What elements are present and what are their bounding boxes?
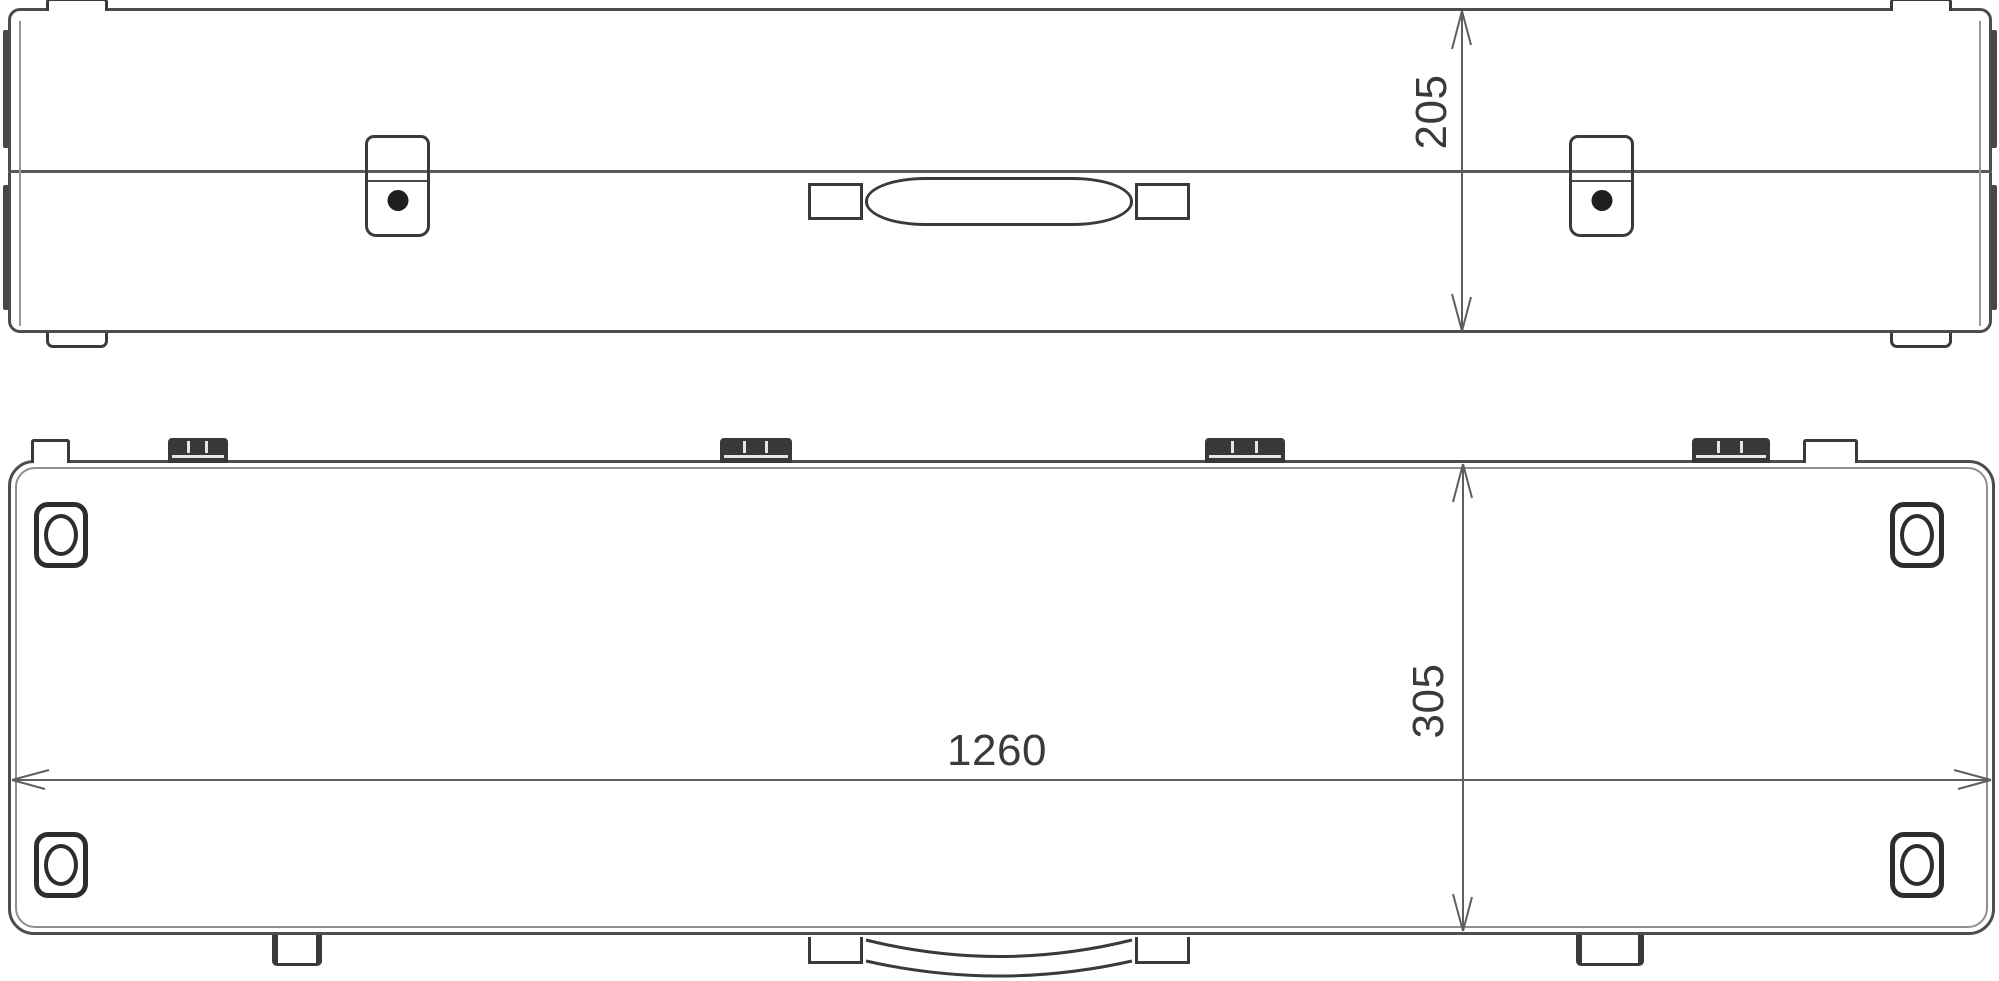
right-endcap-line xyxy=(1979,21,1981,326)
latch-rivet xyxy=(1591,190,1612,211)
plan-handle-grip-curves xyxy=(866,940,1132,976)
hinge-1 xyxy=(168,438,228,463)
top-left-bumper xyxy=(46,0,108,11)
latch-bar-line xyxy=(368,180,427,182)
hinge-2 xyxy=(720,438,792,463)
lid-inner-edge-line xyxy=(15,467,1988,928)
handle-bracket-right-plan xyxy=(1135,937,1190,964)
handle-bracket-left-plan xyxy=(808,937,863,964)
handle-bracket-right xyxy=(1135,183,1190,220)
right-edge-hinge-nub xyxy=(1991,185,1997,310)
bottom-right-foot xyxy=(1890,333,1952,348)
dim-label-height: 205 xyxy=(1406,47,1458,177)
foot-pad-bottom-right xyxy=(1890,832,1944,898)
latch-seam-line xyxy=(1572,170,1631,173)
hinge-3 xyxy=(1205,438,1285,463)
top-right-bumper xyxy=(1890,0,1952,11)
case-side-view xyxy=(8,8,1992,333)
latch-bar-line xyxy=(1572,180,1631,182)
edge-tab-right xyxy=(1803,439,1858,463)
handle-bracket-left xyxy=(808,183,863,220)
foot-pad-bottom-left xyxy=(34,832,88,898)
edge-tab-left xyxy=(31,439,70,463)
hinge-4 xyxy=(1692,438,1770,463)
right-edge-hinge-nub xyxy=(1991,30,1997,148)
technical-drawing: 205 305 1260 xyxy=(0,0,1999,981)
dim-label-width: 1260 xyxy=(932,725,1062,777)
latch-right xyxy=(1569,135,1634,237)
lid-seam-line xyxy=(8,170,1992,173)
latch-left xyxy=(365,135,430,237)
foot-circle xyxy=(44,514,78,556)
left-edge-hinge-nub xyxy=(3,30,9,148)
case-plan-view xyxy=(8,460,1995,935)
left-edge-hinge-nub xyxy=(3,185,9,310)
dim-label-depth: 305 xyxy=(1403,636,1455,766)
foot-pad-top-left xyxy=(34,502,88,568)
bottom-edge-tab-right xyxy=(1576,935,1644,966)
bottom-left-foot xyxy=(46,333,108,348)
foot-circle xyxy=(44,844,78,886)
left-endcap-line xyxy=(19,21,21,326)
carry-handle-grip xyxy=(865,177,1133,226)
latch-rivet xyxy=(387,190,408,211)
foot-circle xyxy=(1900,514,1934,556)
latch-seam-line xyxy=(368,170,427,173)
foot-pad-top-right xyxy=(1890,502,1944,568)
bottom-edge-tab-left xyxy=(272,935,322,966)
foot-circle xyxy=(1900,844,1934,886)
